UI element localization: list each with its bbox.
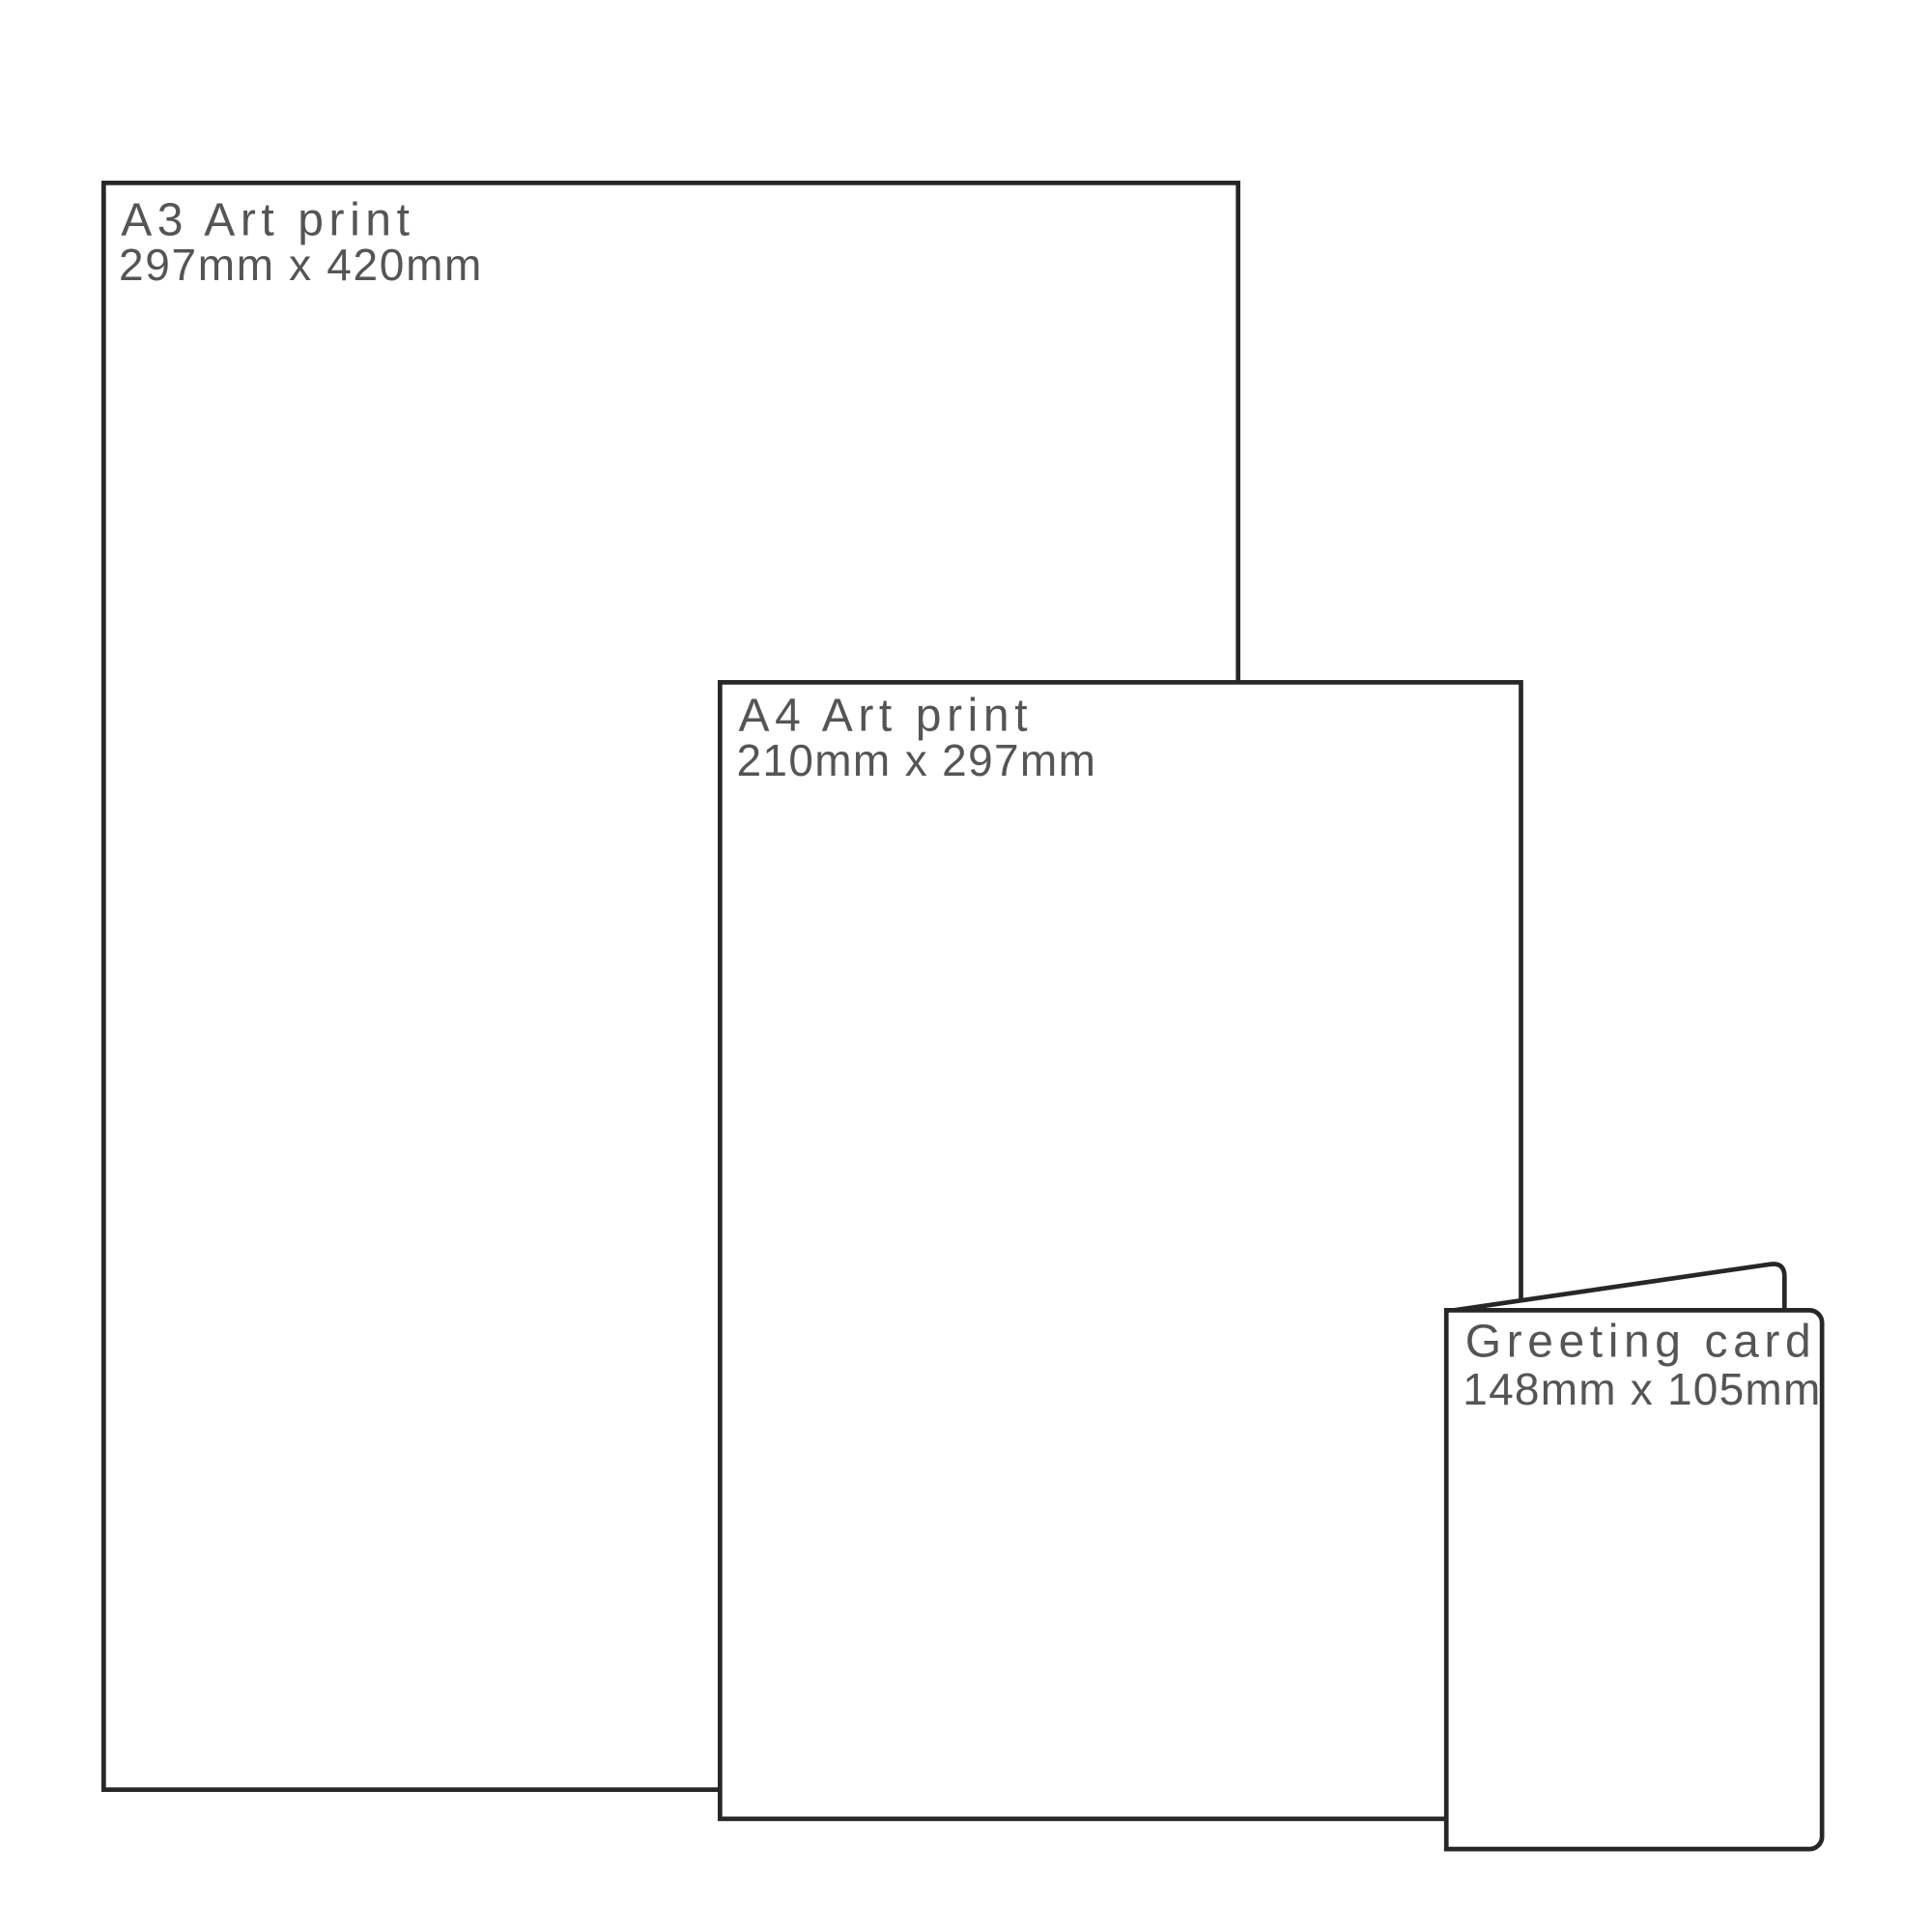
- svg-text:Greeting card: Greeting card: [1465, 1317, 1817, 1368]
- svg-text:148mm x 105mm: 148mm x 105mm: [1463, 1364, 1821, 1414]
- svg-text:A4 Art print: A4 Art print: [739, 691, 1034, 742]
- svg-text:A3 Art print: A3 Art print: [121, 195, 414, 246]
- svg-text:297mm x 420mm: 297mm x 420mm: [119, 240, 483, 290]
- svg-text:210mm x 297mm: 210mm x 297mm: [737, 735, 1097, 785]
